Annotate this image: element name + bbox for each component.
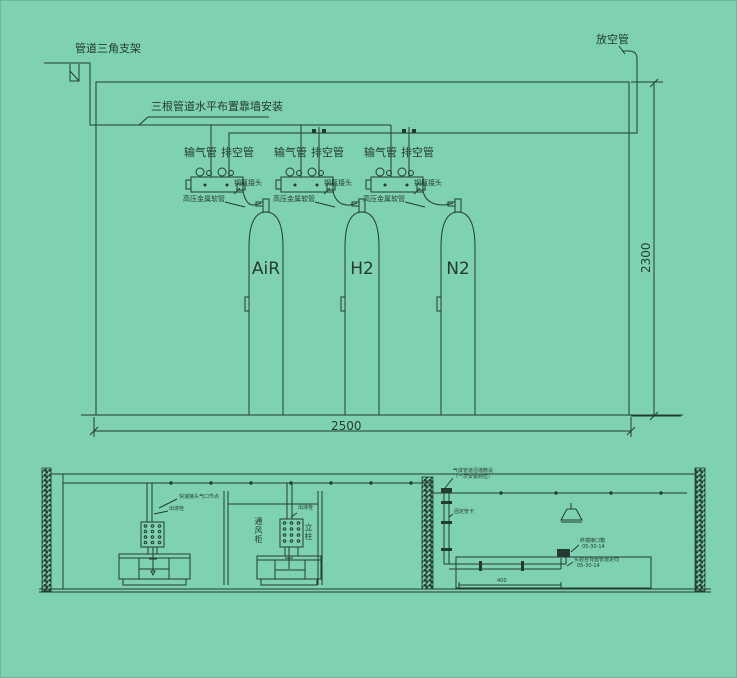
hose-label-2: 高压金属软管 (273, 196, 315, 203)
ceiling-note-line2: （一次安装到位） (453, 475, 493, 480)
dim-width-label: 2500 (331, 420, 362, 432)
right-wall-section (695, 468, 705, 592)
bracket-label: 管道三角支架 (75, 43, 141, 54)
gas-label-air: AiR (241, 261, 291, 278)
small-dim-line (459, 582, 561, 588)
gas-cylinder-h2 (341, 199, 379, 415)
supply-pipe-label-1: 输气管 (184, 147, 217, 158)
hp-hose-1 (243, 191, 261, 205)
bench-outline-right (456, 557, 651, 588)
gas-cylinder-n2 (437, 199, 475, 415)
middle-column-section (422, 477, 433, 589)
gas-label-n2: N2 (433, 261, 483, 278)
gas-cylinder-air (245, 199, 283, 415)
pipe-triangle-bracket (70, 64, 79, 81)
small-dim-label: 400 (497, 579, 507, 584)
dim-height-label: 2300 (640, 242, 652, 273)
room-outline (96, 82, 629, 415)
cylinder-connector-label-3: 钢瓶接头 (414, 180, 442, 187)
bench-note-code: 05-30-14 (577, 564, 600, 569)
cylinder-connector-label-2: 钢瓶接头 (324, 180, 352, 187)
vent-stack-label: 放空管 (596, 34, 629, 45)
drawing-canvas: 管道三角支架 放空管 三根管道水平布置靠墙安装 输气管 排空管 钢瓶接头 高压金… (0, 0, 737, 678)
wall-pipe-run (441, 478, 651, 588)
gas-label-h2: H2 (337, 261, 387, 278)
wall-note: 三根管道水平布置靠墙安装 (151, 101, 283, 112)
hose-label-1: 高压金属软管 (183, 196, 225, 203)
upper-elevation (44, 46, 683, 437)
terminal-box-code: 05-30-14 (582, 545, 605, 550)
supply-pipe-label-3: 输气管 (364, 147, 397, 158)
pipe-clamp-label: 固定管卡 (454, 510, 474, 515)
hp-hose-2 (333, 191, 357, 205)
floor-lines (39, 589, 711, 592)
vent-pipe-label-1: 排空管 (221, 147, 254, 158)
lamp-funnel (561, 503, 582, 522)
hose-label-3: 高压金属软管 (363, 196, 405, 203)
vent-pipe-label-2: 排空管 (311, 147, 344, 158)
cylinder-connector-label-1: 钢瓶接头 (234, 180, 262, 187)
fume-hood-label: 通风柜 (254, 517, 262, 544)
left-wall-section (42, 468, 51, 592)
cad-linework (1, 1, 737, 678)
terminal-box (557, 549, 570, 557)
dim-width-2500 (90, 417, 635, 437)
quick-connect-note: 快速接头气口节点 (179, 495, 219, 500)
wall-note-leader (139, 117, 269, 125)
supply-pipe-label-2: 输气管 (274, 147, 307, 158)
lower-elevation (39, 468, 711, 592)
left-wall-face (51, 468, 63, 592)
horizontal-pipe (444, 557, 566, 569)
column-label: 立柱 (304, 523, 312, 541)
vent-pipe-label-3: 排空管 (401, 147, 434, 158)
outlet-label-mid: 出液栓 (298, 506, 313, 511)
outlet-label-left: 出液栓 (169, 507, 184, 512)
